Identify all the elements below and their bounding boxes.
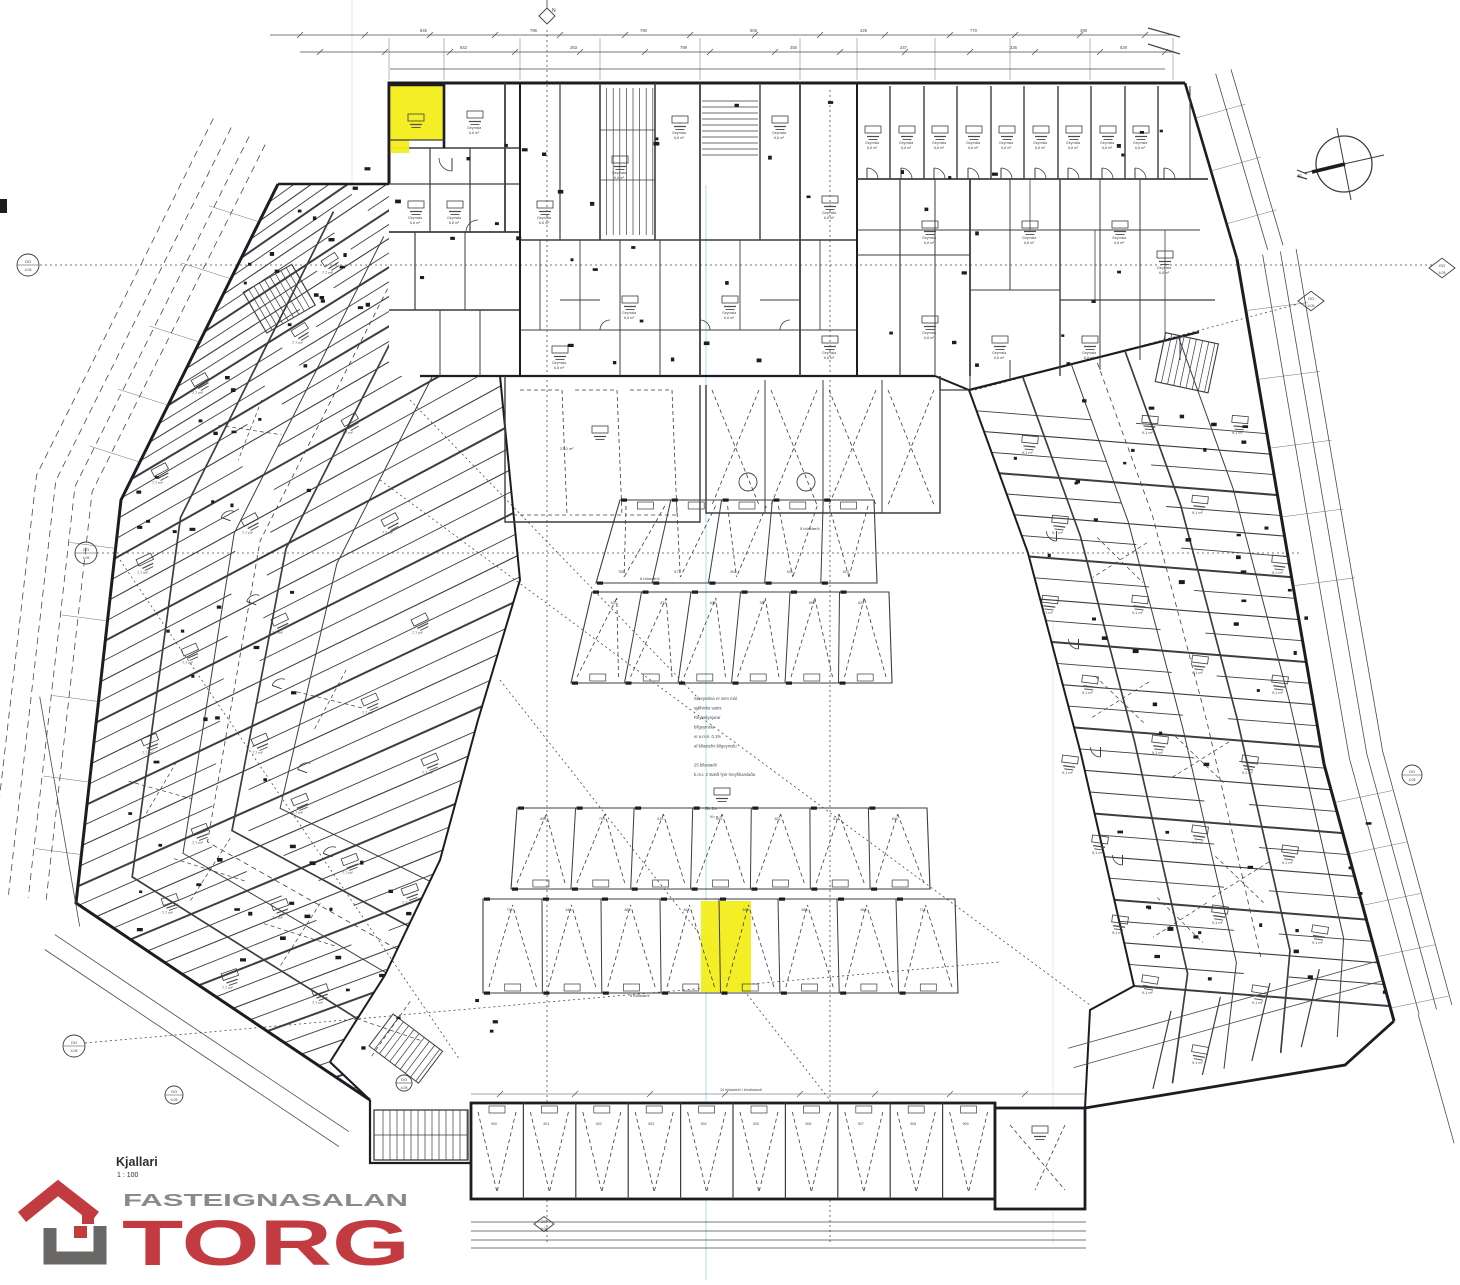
svg-text:822: 822: [775, 817, 781, 821]
svg-text:Geymsla: Geymsla: [722, 311, 736, 315]
svg-text:624: 624: [843, 570, 849, 574]
svg-text:247: 247: [900, 45, 908, 50]
svg-text:889: 889: [802, 908, 808, 912]
svg-text:Geymsla: Geymsla: [1100, 141, 1114, 145]
svg-text:7,7 m²: 7,7 m²: [182, 661, 193, 665]
svg-text:9,1 m²: 9,1 m²: [1112, 931, 1123, 935]
svg-text:Gk 2m: Gk 2m: [705, 806, 718, 811]
svg-text:898: 898: [809, 601, 815, 605]
svg-text:Geymsla: Geymsla: [899, 141, 913, 145]
svg-text:9,1 m²: 9,1 m²: [1042, 611, 1053, 615]
svg-text:7,7 m²: 7,7 m²: [342, 871, 353, 875]
svg-text:Geymsla: Geymsla: [552, 361, 566, 365]
svg-text:814: 814: [833, 817, 839, 821]
svg-text:770: 770: [970, 28, 978, 33]
svg-text:Geymsla: Geymsla: [1022, 236, 1036, 240]
svg-text:629: 629: [1120, 45, 1128, 50]
svg-text:af bílastefni bílgeymslu: af bílastefni bílgeymslu: [694, 744, 737, 749]
svg-text:7,7 m²: 7,7 m²: [422, 771, 433, 775]
svg-text:OO: OO: [25, 259, 31, 264]
svg-text:496: 496: [1080, 28, 1088, 33]
svg-text:7,7 m²: 7,7 m²: [222, 986, 233, 990]
svg-text:6,8 m²: 6,8 m²: [1035, 146, 1046, 150]
svg-text:6,8 m²: 6,8 m²: [774, 136, 785, 140]
svg-text:7,7 m²: 7,7 m²: [142, 751, 153, 755]
svg-text:6,8 m²: 6,8 m²: [674, 136, 685, 140]
svg-text:Geymsla: Geymsla: [612, 171, 626, 175]
svg-text:Geymsla: Geymsla: [822, 351, 836, 355]
svg-text:N: N: [552, 8, 556, 14]
svg-text:7,7 m²: 7,7 m²: [272, 916, 283, 920]
svg-text:6,8 m²: 6,8 m²: [1102, 146, 1113, 150]
svg-text:OO: OO: [1308, 296, 1314, 301]
svg-text:6,8 m²: 6,8 m²: [901, 146, 912, 150]
svg-text:6,8 m²: 6,8 m²: [1159, 271, 1170, 275]
svg-text:709: 709: [599, 817, 605, 821]
svg-text:7,7 m²: 7,7 m²: [382, 531, 393, 535]
svg-text:859: 859: [540, 817, 546, 821]
svg-text:4.05: 4.05: [541, 1227, 548, 1231]
svg-text:Kjallari: Kjallari: [116, 1155, 158, 1169]
svg-text:Geymsla: Geymsla: [1157, 266, 1171, 270]
svg-text:6,8 m²: 6,8 m²: [867, 146, 878, 150]
svg-text:9,1 m²: 9,1 m²: [1132, 611, 1143, 615]
svg-text:907: 907: [858, 1122, 864, 1126]
svg-text:845: 845: [420, 28, 428, 33]
svg-text:Geymsla: Geymsla: [772, 131, 786, 135]
svg-text:6,8 m²: 6,8 m²: [624, 316, 635, 320]
svg-text:714: 714: [920, 908, 926, 912]
svg-text:9,1 m²: 9,1 m²: [1232, 431, 1243, 435]
svg-text:933: 933: [787, 570, 793, 574]
svg-text:6,8 m²: 6,8 m²: [824, 356, 835, 360]
svg-text:677: 677: [674, 570, 680, 574]
svg-text:7,7 m²: 7,7 m²: [312, 1001, 323, 1005]
svg-text:Geymsla: Geymsla: [1112, 236, 1126, 240]
svg-text:606: 606: [750, 28, 758, 33]
svg-text:7,7 m²: 7,7 m²: [192, 841, 203, 845]
svg-text:9,1 m²: 9,1 m²: [1062, 771, 1073, 775]
svg-text:Reykskynjarar: Reykskynjarar: [694, 715, 721, 720]
svg-text:Kh π: Kh π: [710, 815, 719, 819]
svg-text:7,7 m²: 7,7 m²: [412, 631, 423, 635]
svg-text:6,8 m²: 6,8 m²: [1068, 146, 1079, 150]
svg-text:9,1 m²: 9,1 m²: [1092, 851, 1103, 855]
svg-text:9,1 m²: 9,1 m²: [1152, 751, 1163, 755]
svg-text:6,8 m²: 6,8 m²: [934, 146, 945, 150]
svg-text:901: 901: [543, 1122, 549, 1126]
svg-text:9,1 m²: 9,1 m²: [1142, 431, 1153, 435]
svg-text:OO: OO: [83, 547, 89, 552]
svg-text:N: N: [1298, 174, 1302, 180]
svg-text:619: 619: [657, 817, 663, 821]
svg-text:9,1 m²: 9,1 m²: [1082, 691, 1093, 695]
svg-text:er a.m.k. 0,1%: er a.m.k. 0,1%: [694, 734, 721, 739]
svg-text:874: 874: [660, 601, 666, 605]
svg-text:9,1 m²: 9,1 m²: [1052, 531, 1063, 535]
svg-text:Geymsla: Geymsla: [865, 141, 879, 145]
svg-text:263: 263: [570, 45, 578, 50]
svg-text:6 bílastæði: 6 bílastæði: [640, 576, 660, 581]
svg-text:336: 336: [1010, 45, 1018, 50]
svg-text:4.05: 4.05: [1439, 271, 1446, 275]
svg-text:Geymsla: Geymsla: [408, 216, 422, 220]
svg-text:250: 250: [790, 45, 798, 50]
svg-text:OO: OO: [401, 1077, 407, 1082]
svg-text:10 bílastæði í bindistandi: 10 bílastæði í bindistandi: [720, 1087, 762, 1092]
svg-text:817: 817: [684, 908, 690, 912]
svg-text:23,0 m²: 23,0 m²: [560, 446, 574, 451]
svg-text:7,7 m²: 7,7 m²: [192, 391, 203, 395]
svg-text:6,8 m²: 6,8 m²: [924, 241, 935, 245]
svg-text:Geymsla: Geymsla: [922, 331, 936, 335]
svg-text:648: 648: [710, 601, 716, 605]
svg-text:9,1 m²: 9,1 m²: [1272, 571, 1283, 575]
svg-text:6,8 m²: 6,8 m²: [1024, 241, 1035, 245]
svg-text:Geymsla: Geymsla: [999, 141, 1013, 145]
svg-text:Geymsla: Geymsla: [1133, 141, 1147, 145]
svg-text:630: 630: [743, 908, 749, 912]
svg-text:6,8 m²: 6,8 m²: [410, 221, 421, 225]
svg-text:7,7 m²: 7,7 m²: [342, 431, 353, 435]
svg-text:OO: OO: [71, 1040, 77, 1045]
svg-text:6,8 m²: 6,8 m²: [539, 221, 550, 225]
svg-text:6,8 m²: 6,8 m²: [449, 221, 460, 225]
svg-text:900: 900: [491, 1122, 497, 1126]
svg-text:796: 796: [530, 28, 538, 33]
svg-text:663: 663: [861, 908, 867, 912]
svg-text:9,1 m²: 9,1 m²: [1252, 1001, 1263, 1005]
svg-text:25 bílastæði: 25 bílastæði: [694, 763, 717, 768]
svg-text:635: 635: [892, 817, 898, 821]
svg-text:4.05: 4.05: [83, 556, 90, 560]
svg-text:9,1 m²: 9,1 m²: [1192, 1061, 1203, 1065]
svg-text:902: 902: [596, 1122, 602, 1126]
svg-text:Geymsla: Geymsla: [822, 211, 836, 215]
svg-text:OO: OO: [1409, 769, 1415, 774]
svg-text:637: 637: [611, 601, 617, 605]
svg-text:OO: OO: [171, 1089, 177, 1094]
svg-text:7,7 m²: 7,7 m²: [252, 751, 263, 755]
svg-text:646: 646: [566, 908, 572, 912]
svg-text:OO: OO: [541, 1219, 547, 1224]
svg-text:1 : 100: 1 : 100: [117, 1172, 139, 1179]
svg-text:4.05: 4.05: [1308, 304, 1315, 308]
svg-text:906: 906: [805, 1122, 811, 1126]
svg-text:6,8 m²: 6,8 m²: [1135, 146, 1146, 150]
svg-text:7,7 m²: 7,7 m²: [242, 531, 253, 535]
svg-text:sjálfvirka vatns: sjálfvirka vatns: [694, 706, 721, 711]
svg-text:bílgeymslu: bílgeymslu: [694, 725, 715, 730]
svg-text:Geymsla: Geymsla: [467, 126, 481, 130]
svg-text:7,7 m²: 7,7 m²: [322, 271, 333, 275]
svg-text:723: 723: [507, 908, 513, 912]
svg-text:7,7 m²: 7,7 m²: [402, 901, 413, 905]
svg-text:4.05: 4.05: [401, 1086, 408, 1090]
svg-text:Geymsla: Geymsla: [932, 141, 946, 145]
svg-text:7,7 m²: 7,7 m²: [292, 341, 303, 345]
svg-text:9,1 m²: 9,1 m²: [1022, 451, 1033, 455]
svg-text:4.05: 4.05: [25, 268, 32, 272]
svg-text:Geymsla: Geymsla: [1033, 141, 1047, 145]
svg-text:9,1 m²: 9,1 m²: [1312, 941, 1323, 945]
svg-text:Geymsla: Geymsla: [1082, 351, 1096, 355]
svg-text:Geymsla: Geymsla: [622, 311, 636, 315]
svg-text:9,1 m²: 9,1 m²: [1282, 861, 1293, 865]
svg-text:TORG: TORG: [122, 1207, 410, 1279]
svg-text:882: 882: [625, 908, 631, 912]
svg-text:6,8 m²: 6,8 m²: [824, 216, 835, 220]
svg-text:6,8 m²: 6,8 m²: [1001, 146, 1012, 150]
svg-text:b.m.t. 2 stæði fyrir hreyfiham: b.m.t. 2 stæði fyrir hreyfihamlaða: [694, 772, 756, 777]
svg-text:9,1 m²: 9,1 m²: [1242, 771, 1253, 775]
svg-text:4.05: 4.05: [71, 1049, 78, 1053]
svg-text:6,8 m²: 6,8 m²: [554, 366, 565, 370]
svg-text:9,1 m²: 9,1 m²: [1272, 691, 1283, 695]
svg-text:4.05: 4.05: [1409, 778, 1416, 782]
svg-text:OO: OO: [1439, 263, 1445, 268]
svg-text:Geymsla: Geymsla: [922, 236, 936, 240]
svg-text:7,7 m²: 7,7 m²: [137, 571, 148, 575]
svg-text:7,7 m²: 7,7 m²: [272, 631, 283, 635]
svg-text:903: 903: [648, 1122, 654, 1126]
svg-text:905: 905: [753, 1122, 759, 1126]
svg-text:9,1 m²: 9,1 m²: [1192, 671, 1203, 675]
svg-text:9,1 m²: 9,1 m²: [1142, 991, 1153, 995]
svg-text:Geymsla: Geymsla: [537, 216, 551, 220]
svg-text:Geymsla: Geymsla: [992, 351, 1006, 355]
svg-text:787: 787: [759, 601, 765, 605]
svg-text:7,7 m²: 7,7 m²: [362, 711, 373, 715]
svg-text:6,8 m²: 6,8 m²: [994, 356, 1005, 360]
svg-text:629: 629: [858, 601, 864, 605]
svg-text:6,8 m²: 6,8 m²: [469, 131, 480, 135]
svg-text:9,1 m²: 9,1 m²: [1212, 921, 1223, 925]
svg-text:802: 802: [731, 570, 737, 574]
svg-text:6,8 m²: 6,8 m²: [614, 176, 625, 180]
svg-text:4.05: 4.05: [171, 1098, 178, 1102]
svg-text:904: 904: [701, 1122, 707, 1126]
svg-text:6,8 m²: 6,8 m²: [968, 146, 979, 150]
svg-text:799: 799: [680, 45, 688, 50]
svg-text:765: 765: [618, 570, 624, 574]
svg-text:7,7 m²: 7,7 m²: [162, 911, 173, 915]
svg-text:9,1 m²: 9,1 m²: [1192, 841, 1203, 845]
svg-text:908: 908: [910, 1122, 916, 1126]
svg-text:6,8 m²: 6,8 m²: [1114, 241, 1125, 245]
svg-text:6,8 m²: 6,8 m²: [724, 316, 735, 320]
svg-text:842: 842: [460, 45, 468, 50]
svg-text:Geymsla: Geymsla: [966, 141, 980, 145]
svg-text:909: 909: [963, 1122, 969, 1126]
svg-text:8 bílastæði: 8 bílastæði: [630, 993, 650, 998]
svg-text:Geymsla: Geymsla: [1066, 141, 1080, 145]
svg-text:790: 790: [640, 28, 648, 33]
svg-text:9,1 m²: 9,1 m²: [1192, 511, 1203, 515]
svg-text:6,8 m²: 6,8 m²: [924, 336, 935, 340]
svg-text:Geymsla: Geymsla: [672, 131, 686, 135]
svg-text:6,8 m²: 6,8 m²: [1084, 356, 1095, 360]
svg-text:7,7 m²: 7,7 m²: [152, 481, 163, 485]
svg-text:426: 426: [860, 28, 868, 33]
svg-text:Séreynslan er sem mál: Séreynslan er sem mál: [694, 696, 737, 701]
svg-text:7,7 m²: 7,7 m²: [292, 811, 303, 815]
svg-text:Geymsla: Geymsla: [447, 216, 461, 220]
